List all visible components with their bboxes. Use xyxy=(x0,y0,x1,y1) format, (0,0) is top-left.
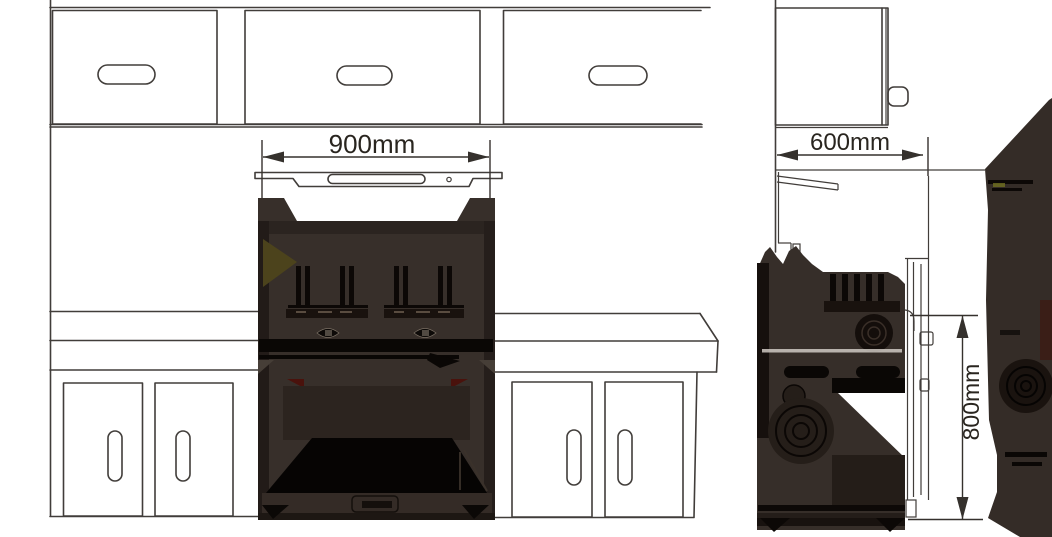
range-cooker-front xyxy=(258,198,495,520)
base-cabinet-door xyxy=(64,383,143,516)
front-left-base-cabinet xyxy=(50,312,258,517)
hob-trim-strip xyxy=(255,173,502,187)
dimension-900mm: 900mm xyxy=(262,129,490,207)
ornate-detail xyxy=(768,398,834,464)
hob-trim-recess xyxy=(328,175,425,184)
lower-shade xyxy=(832,455,905,505)
arrowhead-up-icon xyxy=(957,316,969,339)
door-handle xyxy=(589,66,647,85)
wall-cabinet-door xyxy=(53,11,218,125)
knob-highlight xyxy=(422,330,429,336)
plinth xyxy=(258,513,495,520)
right-dark-band xyxy=(985,98,1052,537)
grate-rib xyxy=(854,274,860,301)
door-handle xyxy=(567,430,581,485)
band-streak xyxy=(1012,462,1042,466)
cabinet-end-line xyxy=(694,372,697,517)
worktop-corner-line xyxy=(700,314,718,342)
door-handle xyxy=(618,430,632,485)
front-wall-cabinets xyxy=(50,8,710,128)
knob-highlight xyxy=(325,330,332,336)
arrowhead-left-icon xyxy=(777,150,798,161)
handle-bar xyxy=(856,366,900,378)
side-door-edge xyxy=(905,176,933,517)
door-top-shade xyxy=(832,378,905,393)
cabinet-carcase xyxy=(776,8,889,125)
width-dimension-label: 900mm xyxy=(329,129,416,159)
door-bracket xyxy=(905,310,914,331)
door-handle xyxy=(98,65,155,84)
base-cabinet-door xyxy=(512,382,592,517)
side-knob xyxy=(855,314,893,352)
depth-dimension-label: 600mm xyxy=(810,129,890,156)
grate-rib xyxy=(878,274,884,301)
arrowhead-down-icon xyxy=(957,497,969,520)
height-dimension-label: 800mm xyxy=(958,364,984,441)
arrowhead-left-icon xyxy=(263,152,284,163)
diagram-canvas: 900mm xyxy=(0,0,1052,537)
base-cabinet-door xyxy=(155,383,233,516)
grate-rib xyxy=(866,274,872,301)
wall-cabinet-door xyxy=(245,11,480,125)
worktop-end-line xyxy=(717,341,719,372)
door-bottom-step xyxy=(906,500,916,517)
oven-window-upper xyxy=(283,386,470,440)
side-worktop xyxy=(776,170,986,252)
front-view: 900mm xyxy=(50,0,718,520)
wall-cabinet-door xyxy=(504,11,702,125)
side-wall-cabinet xyxy=(775,8,908,128)
burner-band xyxy=(824,301,900,312)
door-handle xyxy=(108,431,122,481)
grate-rib xyxy=(830,274,836,301)
door-handle xyxy=(888,87,908,106)
band-olive-fleck xyxy=(993,183,1005,187)
band-maroon-streak xyxy=(1040,300,1052,360)
side-view: 600mm xyxy=(757,0,985,532)
hob-trim-dot xyxy=(447,177,451,181)
backguard-shadow xyxy=(269,221,484,234)
dimension-800mm: 800mm xyxy=(908,316,984,520)
panel-gap-highlight xyxy=(762,349,902,353)
arrowhead-right-icon xyxy=(468,152,489,163)
door-handle xyxy=(176,431,190,481)
grate-rib xyxy=(842,274,848,301)
arrowhead-right-icon xyxy=(902,150,923,161)
band-streak xyxy=(1005,452,1047,457)
range-cooker-side xyxy=(757,246,905,532)
band-streak xyxy=(1000,330,1020,335)
handle-bar xyxy=(784,366,829,378)
installation-diagram: 900mm xyxy=(0,0,1052,537)
drawer-handle-slot xyxy=(362,501,392,508)
base-stripe xyxy=(757,513,905,518)
door-handle xyxy=(337,66,392,85)
base-stripe xyxy=(758,505,905,511)
front-right-base-cabinet xyxy=(495,314,718,518)
base-cabinet-door xyxy=(605,382,683,517)
control-panel xyxy=(259,339,493,352)
band-streak xyxy=(992,188,1022,191)
dimension-600mm: 600mm xyxy=(777,129,928,176)
door-handle-tab xyxy=(920,332,933,345)
